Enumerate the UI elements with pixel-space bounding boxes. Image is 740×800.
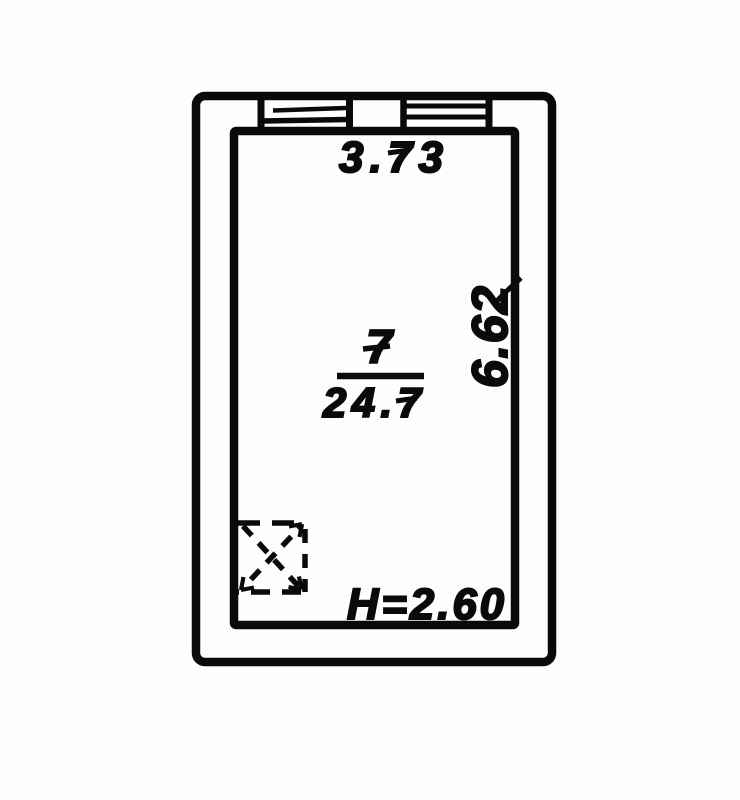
svg-text:24.7: 24.7 [322,379,423,426]
svg-text:6.62: 6.62 [462,286,518,388]
svg-text:3.73: 3.73 [339,133,443,182]
svg-text:H=2.60: H=2.60 [347,581,504,629]
